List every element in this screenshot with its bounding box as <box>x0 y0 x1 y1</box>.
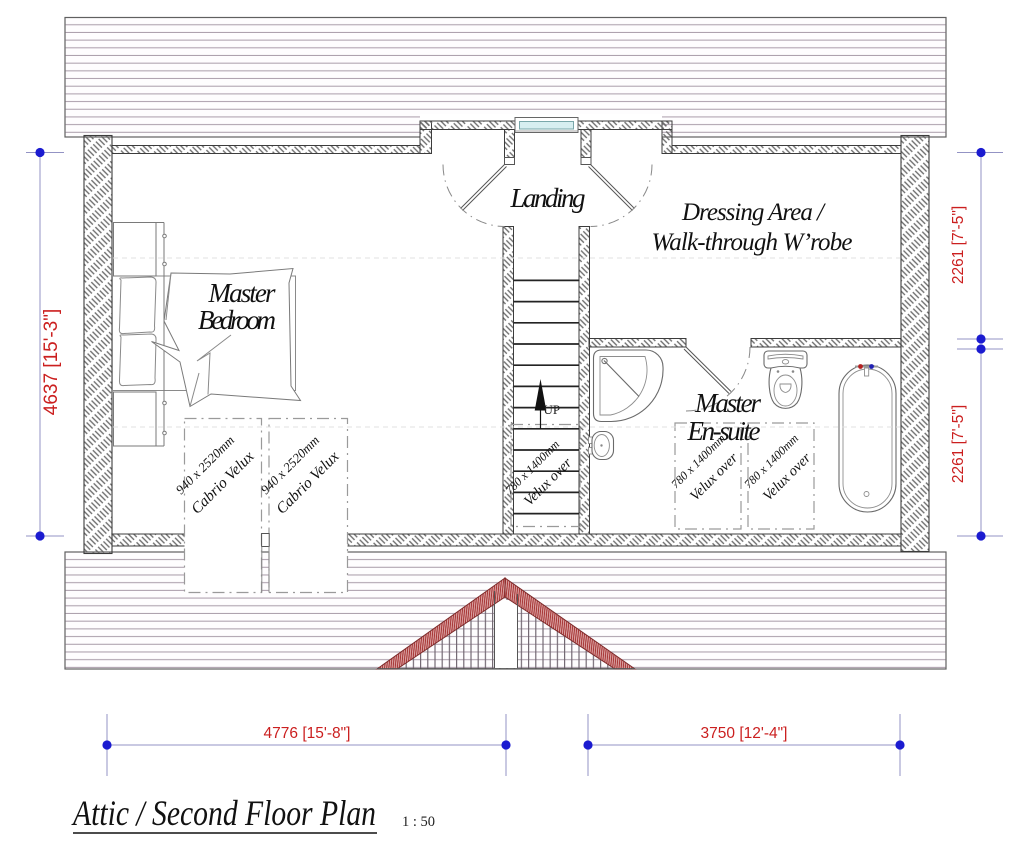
svg-text:Landing: Landing <box>510 183 586 213</box>
svg-text:4776 [15'-8"]: 4776 [15'-8"] <box>264 725 351 742</box>
svg-text:4637 [15'-3"]: 4637 [15'-3"] <box>41 309 62 416</box>
svg-text:1 : 50: 1 : 50 <box>402 814 435 830</box>
svg-text:Attic / Second Floor Plan: Attic / Second Floor Plan <box>71 793 376 833</box>
svg-text:2261 [7'-5"]: 2261 [7'-5"] <box>950 405 967 483</box>
svg-text:Dressing Area /: Dressing Area / <box>681 199 826 226</box>
svg-text:En-suite: En-suite <box>687 416 761 446</box>
svg-text:3750 [12'-4"]: 3750 [12'-4"] <box>701 725 788 742</box>
svg-text:Bedroom: Bedroom <box>198 305 276 335</box>
svg-text:UP: UP <box>544 402 561 417</box>
svg-text:Master: Master <box>208 278 276 308</box>
svg-text:Master: Master <box>694 388 761 418</box>
svg-text:Walk-through W’robe: Walk-through W’robe <box>652 229 853 256</box>
svg-text:2261 [7'-5"]: 2261 [7'-5"] <box>950 206 967 284</box>
